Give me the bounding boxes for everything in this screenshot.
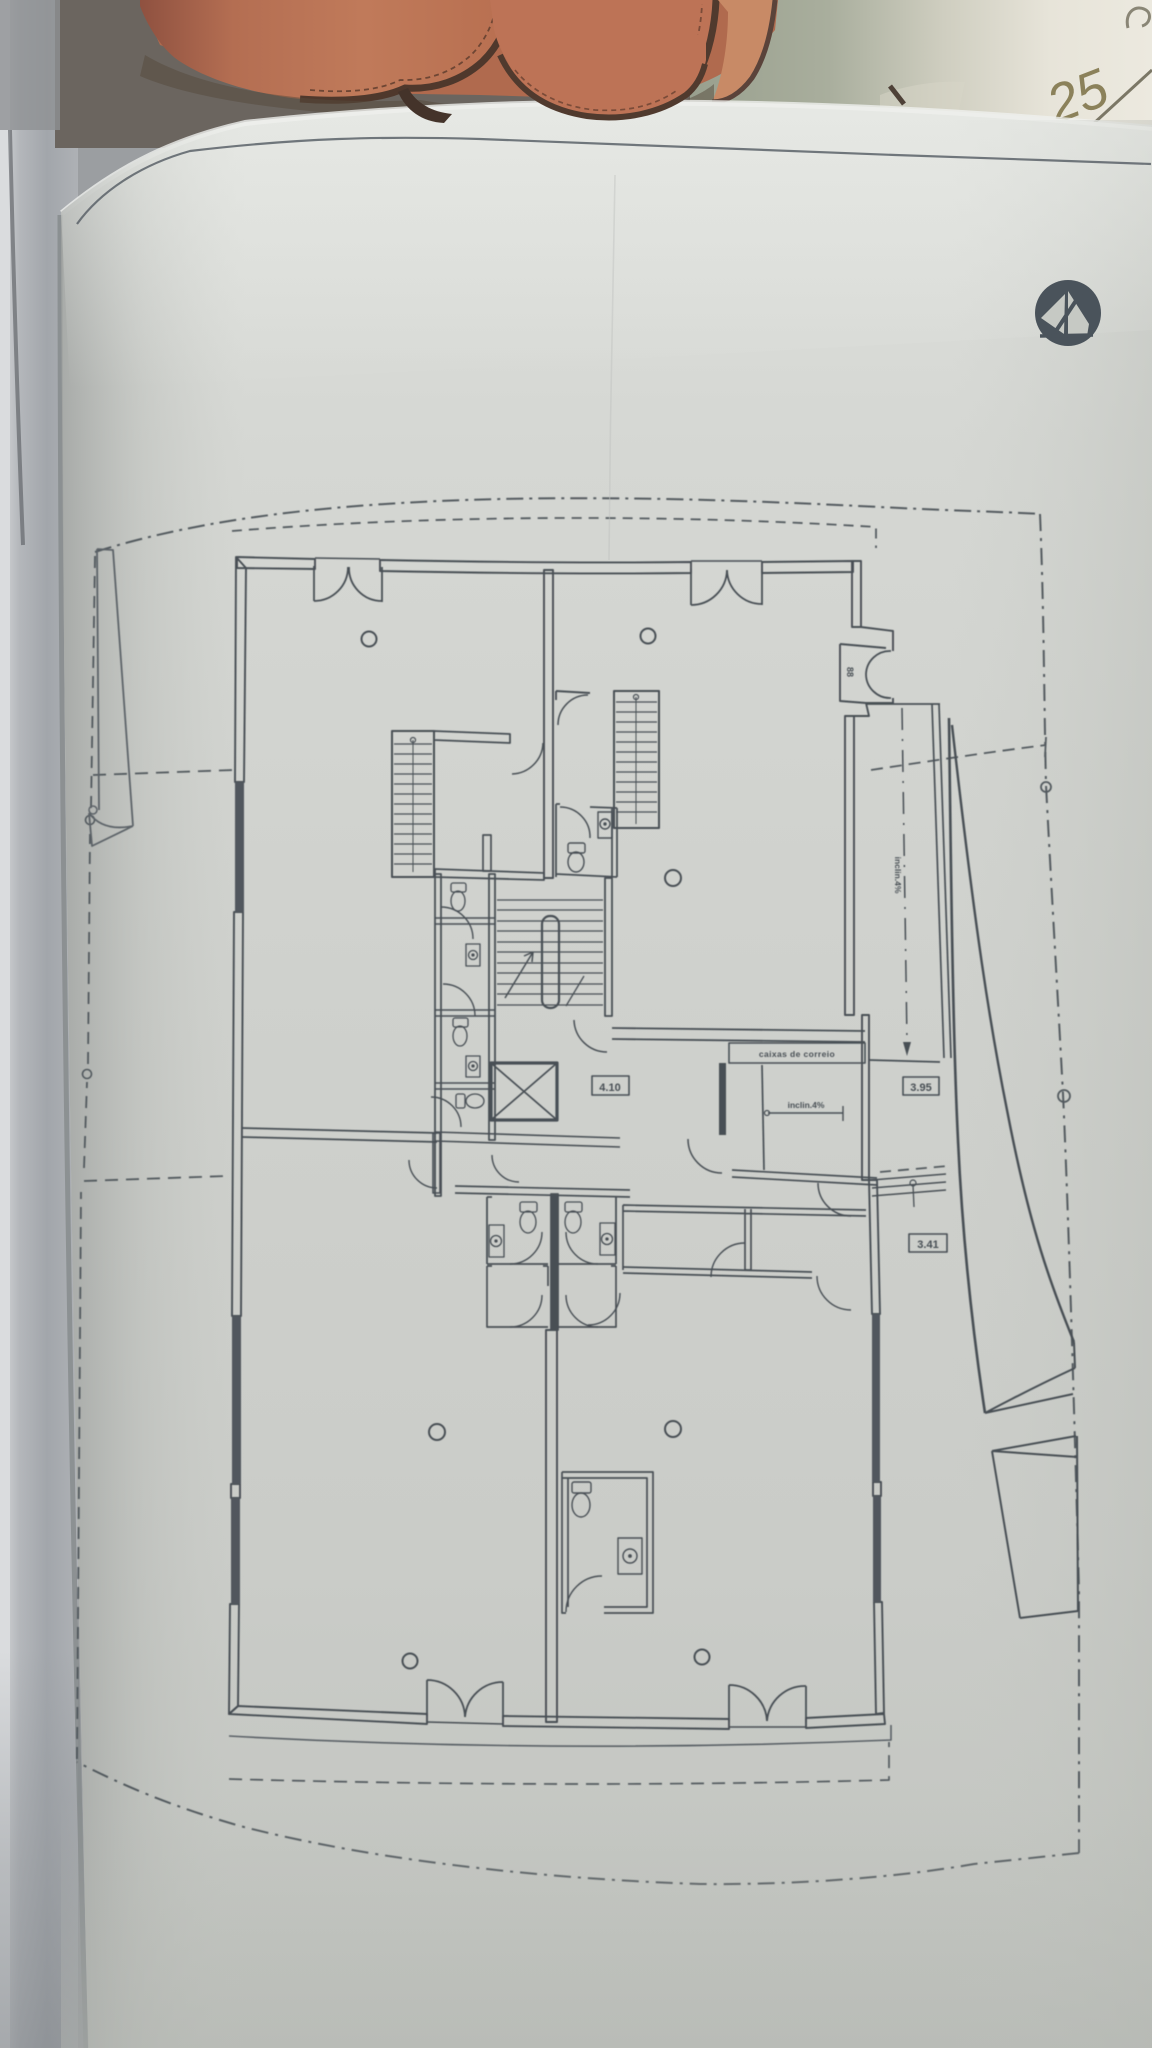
svg-text:inclin.4%: inclin.4% [788, 1100, 825, 1110]
svg-text:3.41: 3.41 [917, 1239, 938, 1251]
svg-text:4.10: 4.10 [599, 1082, 620, 1094]
svg-text:88: 88 [845, 667, 855, 677]
svg-text:inclin.4%: inclin.4% [893, 857, 903, 894]
svg-text:3.95: 3.95 [910, 1082, 931, 1094]
svg-text:caixas de correio: caixas de correio [759, 1049, 835, 1059]
